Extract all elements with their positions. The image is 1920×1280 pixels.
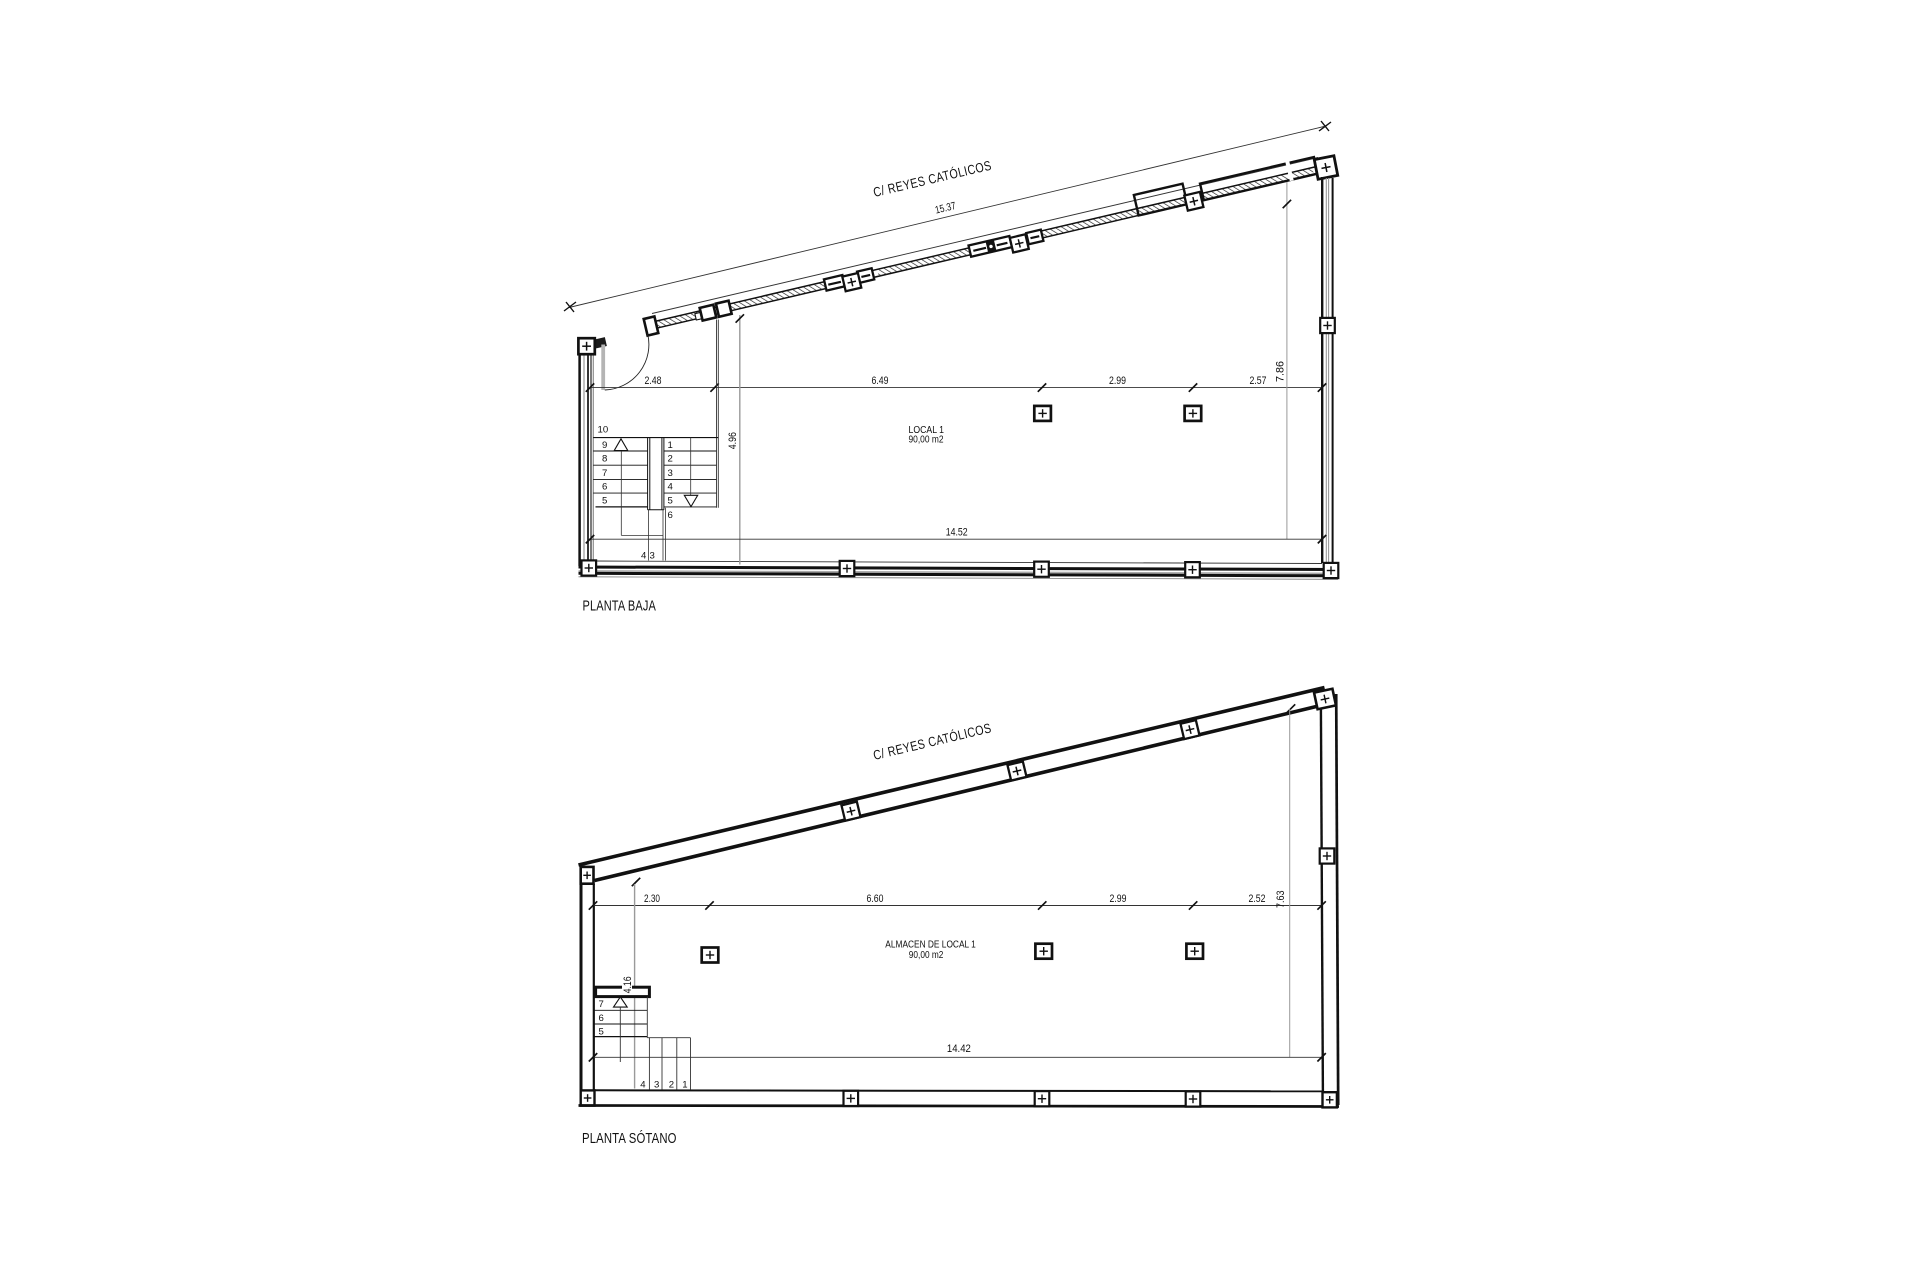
svg-text:2: 2 xyxy=(668,454,673,465)
svg-text:C/ REYES CATÓLICOS: C/ REYES CATÓLICOS xyxy=(872,720,993,763)
svg-text:2.30: 2.30 xyxy=(644,893,660,905)
svg-text:2.99: 2.99 xyxy=(1110,893,1127,905)
svg-text:7.63: 7.63 xyxy=(1275,890,1287,908)
svg-text:90,00 m2: 90,00 m2 xyxy=(909,434,944,445)
svg-text:8: 8 xyxy=(602,454,607,465)
svg-text:C/ REYES CATÓLICOS: C/ REYES CATÓLICOS xyxy=(872,158,993,200)
svg-text:4: 4 xyxy=(668,482,674,493)
svg-text:7: 7 xyxy=(602,468,607,479)
svg-text:2.57: 2.57 xyxy=(1250,375,1267,387)
svg-text:5: 5 xyxy=(602,496,607,507)
svg-text:2.52: 2.52 xyxy=(1249,893,1266,905)
svg-text:1: 1 xyxy=(668,440,673,451)
svg-text:2.99: 2.99 xyxy=(1109,375,1126,387)
svg-text:14.42: 14.42 xyxy=(947,1043,971,1055)
svg-text:6: 6 xyxy=(599,1013,604,1024)
svg-text:6.60: 6.60 xyxy=(867,893,884,905)
svg-text:5: 5 xyxy=(599,1026,604,1037)
svg-text:14.52: 14.52 xyxy=(946,527,968,539)
svg-text:ALMACEN DE LOCAL 1: ALMACEN DE LOCAL 1 xyxy=(885,940,976,951)
svg-text:6: 6 xyxy=(602,482,607,493)
svg-text:PLANTA BAJA: PLANTA BAJA xyxy=(583,598,657,615)
svg-text:5: 5 xyxy=(668,496,673,507)
svg-text:6.49: 6.49 xyxy=(872,375,889,387)
svg-text:4: 4 xyxy=(641,551,647,562)
svg-text:1: 1 xyxy=(682,1080,687,1091)
svg-text:2: 2 xyxy=(669,1080,674,1091)
svg-text:PLANTA SÓTANO: PLANTA SÓTANO xyxy=(582,1130,677,1147)
svg-text:6: 6 xyxy=(668,510,673,521)
svg-text:9: 9 xyxy=(602,440,607,451)
svg-text:7: 7 xyxy=(599,999,604,1010)
svg-text:4.16: 4.16 xyxy=(622,976,634,993)
svg-text:4.96: 4.96 xyxy=(727,432,739,449)
svg-text:7.86: 7.86 xyxy=(1274,361,1286,382)
svg-text:3: 3 xyxy=(668,468,673,479)
svg-text:90,00 m2: 90,00 m2 xyxy=(909,950,944,961)
svg-text:10: 10 xyxy=(598,424,609,435)
svg-text:15.37: 15.37 xyxy=(934,200,957,216)
svg-text:4: 4 xyxy=(640,1080,646,1091)
svg-text:2.48: 2.48 xyxy=(645,375,662,387)
svg-text:3: 3 xyxy=(650,551,655,562)
svg-text:3: 3 xyxy=(654,1080,659,1091)
